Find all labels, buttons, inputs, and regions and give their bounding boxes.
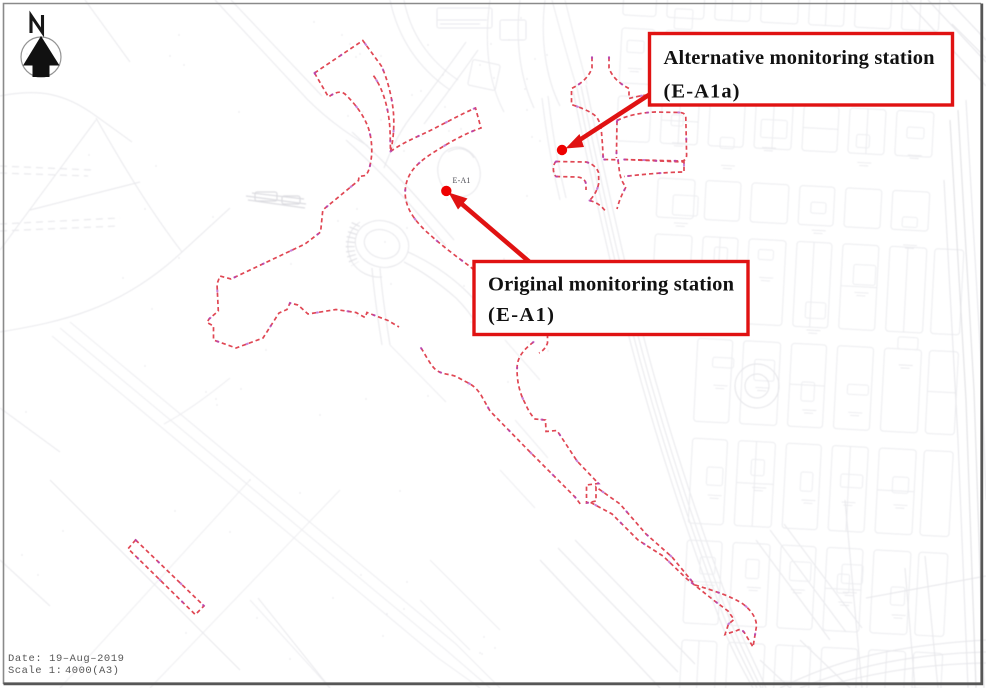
svg-text:(E-A1): (E-A1) — [488, 304, 554, 326]
svg-text:Date: 19–Aug–2019: Date: 19–Aug–2019 — [8, 653, 124, 665]
svg-text:(E-A1a): (E-A1a) — [664, 81, 740, 103]
svg-text:Alternative monitoring station: Alternative monitoring station — [664, 47, 936, 69]
svg-text:Original monitoring station: Original monitoring station — [488, 274, 735, 296]
svg-text:E-A1: E-A1 — [453, 176, 471, 185]
svg-text:Scale 1: 4000(A3): Scale 1: 4000(A3) — [8, 665, 119, 677]
